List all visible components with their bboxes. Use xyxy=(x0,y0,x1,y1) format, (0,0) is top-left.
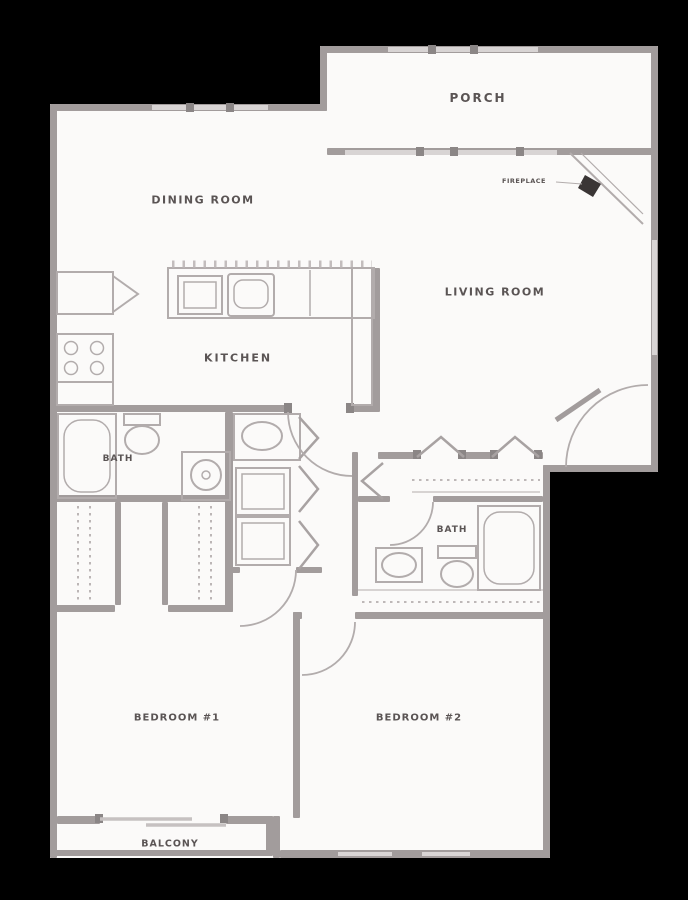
washer-dryer-icon xyxy=(236,468,290,565)
refrigerator-icon xyxy=(57,272,138,314)
balcony-sliding-door xyxy=(100,819,226,825)
room-label-dining-room: DINING ROOM xyxy=(151,194,254,207)
room-label-kitchen: KITCHEN xyxy=(204,352,272,365)
toilet-icon xyxy=(438,546,476,587)
room-label-bedroom-1: BEDROOM #1 xyxy=(134,713,220,724)
room-label-balcony: BALCONY xyxy=(141,839,199,850)
vanity-sink-icon xyxy=(376,548,422,582)
room-label-bedroom-2: BEDROOM #2 xyxy=(376,713,462,724)
bathtub-icon xyxy=(478,506,540,590)
kitchen-counter xyxy=(168,264,374,405)
floor-plan: PORCH DINING ROOM LIVING ROOM KITCHEN BA… xyxy=(0,0,688,900)
room-label-bath-1: BATH xyxy=(103,454,134,464)
room-label-bath-2: BATH xyxy=(437,525,468,535)
room-label-living-room: LIVING ROOM xyxy=(445,286,545,299)
stove-icon xyxy=(57,334,113,405)
fireplace-icon xyxy=(556,153,643,224)
vanity-sink-icon xyxy=(234,414,300,460)
room-label-porch: PORCH xyxy=(449,91,506,105)
corner-sink-icon xyxy=(182,452,230,500)
fixtures-layer xyxy=(0,0,688,900)
bifold-door-icon xyxy=(299,417,539,569)
annotation-fireplace: FIREPLACE xyxy=(502,177,546,185)
toilet-icon xyxy=(124,414,160,454)
